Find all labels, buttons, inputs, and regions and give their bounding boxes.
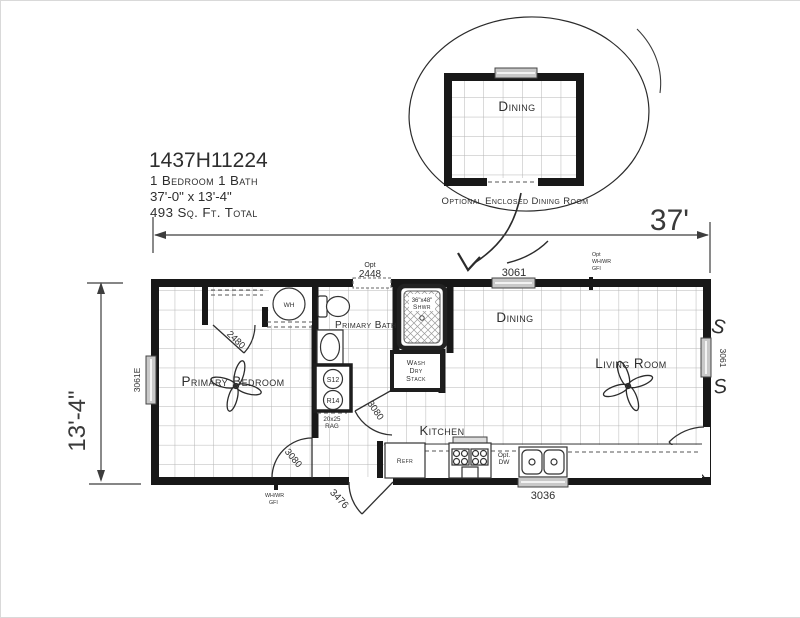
shower-drain: [420, 316, 424, 320]
toilet-tank: [318, 296, 327, 317]
dim-arrow-down: [97, 470, 105, 482]
shower-label: Shwr: [413, 304, 431, 311]
gfi-top-label-3: GFI: [592, 266, 601, 272]
dim-arrow-left: [154, 231, 166, 239]
stack-label-2: Dry: [409, 368, 422, 375]
model-number: 1437H11224: [149, 149, 268, 172]
gfi-bottom-label-2: GFI: [269, 500, 278, 506]
range: [449, 437, 491, 478]
stack-label-1: Wash: [407, 360, 426, 367]
top-window-label: 3061: [502, 267, 526, 279]
switch-symbol-bottom: S: [712, 375, 729, 399]
optional-dining-inset: Dining Optional Enclosed Dining Room: [404, 11, 661, 270]
toilet-bowl: [327, 297, 350, 317]
opt-window-label-1: Opt: [364, 262, 375, 269]
shower: 36"x48" Shwr: [399, 286, 445, 348]
floorplan-page: 1437H11224 1 Bedroom 1 Bath 37'-0" x 13'…: [0, 0, 800, 618]
dim-arrow-up: [97, 282, 105, 294]
switch-symbol-top: S: [709, 315, 727, 339]
dim-arrow-right: [697, 231, 709, 239]
return-register-label: R14: [327, 398, 340, 405]
bedroom-label: Primary Bedroom: [181, 374, 284, 389]
rag-label-1: 20x25: [323, 416, 341, 423]
oven-door: [462, 467, 478, 478]
bath-label: Primary Bath: [335, 320, 397, 331]
water-heater-label: WH: [284, 302, 295, 309]
pointer-arrow-stroke2: [507, 241, 548, 263]
back-door-label: 3476: [327, 487, 351, 511]
gfi-top-label-1: Opt: [592, 252, 601, 258]
inset-caption: Optional Enclosed Dining Room: [442, 196, 589, 207]
inset-floor-grid: [452, 81, 576, 178]
unit-size: 37'-0" x 13'-4": [150, 189, 232, 204]
left-window-label: 3061E: [132, 367, 142, 392]
rag-label-2: RAG: [325, 423, 339, 430]
gfi-top-label-2: WH/WR: [592, 259, 611, 265]
stack-label-3: Stack: [406, 376, 426, 383]
right-window-label: 3061: [718, 349, 728, 368]
pointer-arrowhead: [458, 253, 480, 270]
refrigerator-label: Refr: [397, 458, 413, 465]
height-dimension-label: 13'-4": [64, 390, 91, 451]
height-dimension: 13'-4": [64, 282, 141, 484]
gfi-bottom-label-1: WH/WR: [265, 493, 284, 499]
bath-sink: [321, 334, 340, 361]
kitchen-stub-wall: [377, 441, 383, 478]
washer-dryer-stack: Wash Dry Stack: [392, 352, 442, 390]
supply-register-label: S12: [327, 377, 340, 384]
dining-label: Dining: [496, 310, 533, 325]
width-dimension-label: 37': [650, 204, 689, 237]
kitchen-sink: [519, 447, 567, 477]
dim-extension-lines: [153, 217, 710, 273]
dishwasher-label-2: DW: [499, 459, 511, 466]
title-block: 1437H11224 1 Bedroom 1 Bath 37'-0" x 13'…: [149, 149, 268, 220]
kitchen-window-label: 3036: [531, 490, 555, 502]
total-area: 493 Sq. Ft. Total: [150, 205, 258, 220]
gfi-receptacle-top: [589, 277, 593, 290]
kitchen-label: Kitchen: [420, 423, 465, 438]
floor-plan-canvas: 1437H11224 1 Bedroom 1 Bath 37'-0" x 13'…: [1, 1, 800, 617]
living-label: Living Room: [595, 356, 666, 371]
opt-window-label-2: 2448: [359, 269, 382, 280]
inset-room-label: Dining: [498, 99, 535, 114]
gfi-receptacle-bottom: [274, 478, 278, 490]
bed-bath-config: 1 Bedroom 1 Bath: [150, 173, 258, 188]
sketch-stroke: [637, 29, 661, 93]
dishwasher-label-1: Opt.: [498, 452, 510, 459]
